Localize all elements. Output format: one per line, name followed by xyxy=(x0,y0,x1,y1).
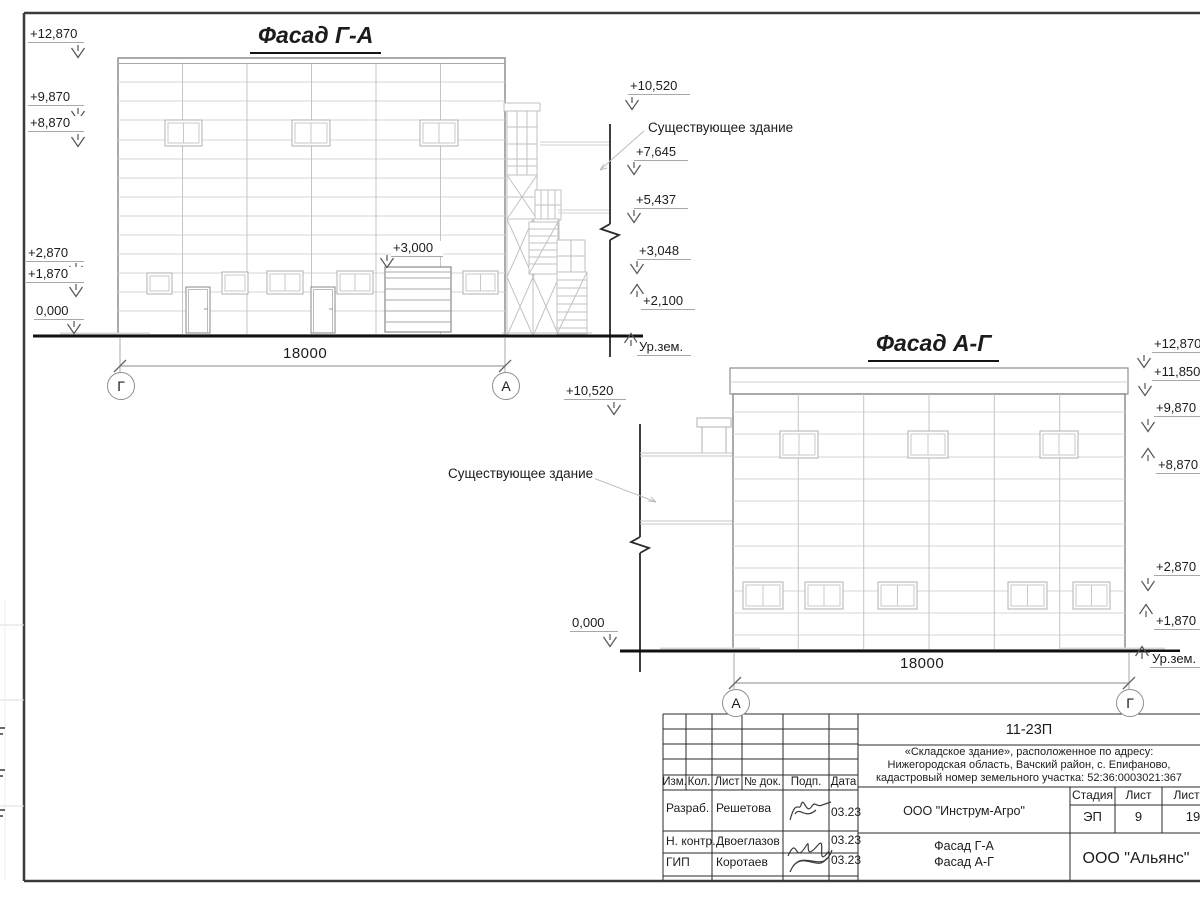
elevation-mark: +9,870 xyxy=(28,90,84,106)
dimension-label: 18000 xyxy=(283,345,327,362)
level-mark-down-icon xyxy=(66,320,82,335)
titleblock-name: Двоеглазов xyxy=(716,835,780,848)
axis-marker: Г xyxy=(1116,689,1144,717)
drawing-sheet: Фасад Г-А +12,870 +9,870 +8,870 +2,870 +… xyxy=(0,0,1200,900)
facade-ga-title: Фасад Г-А xyxy=(250,22,381,54)
ground-level-label: Ур.зем. xyxy=(1150,652,1200,668)
level-mark-down-icon xyxy=(70,133,86,148)
level-mark-down-icon xyxy=(626,209,642,224)
titleblock-project-line: кадастровый номер земельного участка: 52… xyxy=(858,772,1200,786)
stair-tower xyxy=(502,103,592,336)
elevation-mark: +2,100 xyxy=(641,294,695,310)
titleblock-sheet-title: Фасад Г-А xyxy=(858,840,1070,853)
elevation-mark: +1,870 xyxy=(1154,614,1200,630)
axis-marker: А xyxy=(722,689,750,717)
level-mark-up-icon xyxy=(1140,447,1156,462)
titleblock-project-line: Нижегородская область, Вачский район, с.… xyxy=(858,759,1200,773)
level-mark-down-icon xyxy=(624,96,640,111)
titleblock-company: ООО "Инструм-Агро" xyxy=(858,790,1070,833)
left-margin-fragments xyxy=(0,600,24,880)
elevation-mark: 0,000 xyxy=(570,616,618,632)
elevation-mark: +7,645 xyxy=(634,145,688,161)
dimension-label: 18000 xyxy=(900,655,944,672)
titleblock-stage-label: Стадия xyxy=(1070,789,1115,802)
elevation-mark: +10,520 xyxy=(564,384,626,400)
elevation-mark: +3,048 xyxy=(637,244,691,260)
elevation-mark: +5,437 xyxy=(634,193,688,209)
facade-ag-wall xyxy=(730,368,1128,650)
titleblock-sheets-value: 19 xyxy=(1162,810,1200,823)
titleblock-date: 03.23 xyxy=(831,806,861,819)
level-mark-up-icon xyxy=(1134,645,1150,660)
titleblock-role: Н. контр. xyxy=(666,835,716,848)
level-mark-down-icon xyxy=(1140,418,1156,433)
level-mark-down-icon xyxy=(1137,382,1153,397)
titleblock-role: Разраб. xyxy=(666,802,709,815)
elevation-mark: +10,520 xyxy=(628,79,690,95)
elevation-mark: 0,000 xyxy=(34,304,84,320)
elevation-mark: +12,870 xyxy=(28,27,84,43)
existing-building-label: Существующее здание xyxy=(646,120,795,135)
axis-letter: А xyxy=(501,378,510,394)
level-mark-down-icon xyxy=(70,44,86,59)
level-mark-down-icon xyxy=(626,161,642,176)
existing-building-label: Существующее здание xyxy=(446,466,595,481)
axis-marker: Г xyxy=(107,372,135,400)
titleblock-sheet-label: Лист xyxy=(1115,789,1162,802)
titleblock-code: 11-23П xyxy=(858,717,1200,743)
titleblock-project-line: «Складское здание», расположенное по адр… xyxy=(858,746,1200,760)
level-mark-down-icon xyxy=(629,260,645,275)
titleblock-name: Решетова xyxy=(716,802,771,815)
elevation-mark: +8,870 xyxy=(1156,458,1200,474)
elevation-mark: +8,870 xyxy=(28,116,84,132)
elevation-mark: +2,870 xyxy=(1154,560,1200,576)
titleblock-header-cell: Кол. xyxy=(686,776,712,789)
level-mark-down-icon xyxy=(68,283,84,298)
titleblock-header-cell: Подп. xyxy=(783,776,829,789)
elevation-mark: +2,870 xyxy=(26,246,84,262)
axis-letter: А xyxy=(731,695,740,711)
elevation-mark: +9,870 xyxy=(1154,401,1200,417)
level-mark-down-icon xyxy=(1140,577,1156,592)
titleblock-header-cell: Изм. xyxy=(663,776,686,789)
titleblock-header-cell: Лист xyxy=(712,776,742,789)
facade-ga-ground xyxy=(33,334,643,375)
facade-ag-title: Фасад А-Г xyxy=(868,330,999,362)
titleblock-sheet-value: 9 xyxy=(1115,810,1162,823)
titleblock-sheets-label: Листов xyxy=(1162,789,1200,802)
titleblock-stage-value: ЭП xyxy=(1070,810,1115,823)
level-mark-down-icon xyxy=(379,254,395,269)
titleblock-role: ГИП xyxy=(666,856,690,869)
elevation-mark: +12,870 xyxy=(1152,337,1200,353)
titleblock-name: Коротаев xyxy=(716,856,768,869)
titleblock-header-cell: № док. xyxy=(742,776,783,789)
facade-ga-gate xyxy=(385,267,451,332)
titleblock-date: 03.23 xyxy=(831,854,861,867)
axis-letter: Г xyxy=(1126,695,1134,711)
elevation-mark: +1,870 xyxy=(26,267,84,283)
titleblock-header-cell: Дата xyxy=(829,776,858,789)
elevation-mark: +3,000 xyxy=(391,241,443,257)
titleblock-org: ООО "Альянс" xyxy=(1070,845,1200,871)
axis-marker: А xyxy=(492,372,520,400)
level-mark-down-icon xyxy=(602,633,618,648)
elevation-mark: +11,850 xyxy=(1152,365,1200,381)
axis-letter: Г xyxy=(117,378,125,394)
level-mark-up-icon xyxy=(1138,603,1154,618)
titleblock-date: 03.23 xyxy=(831,834,861,847)
titleblock-sheet-title: Фасад А-Г xyxy=(858,856,1070,869)
ground-level-label: Ур.зем. xyxy=(637,340,691,356)
level-mark-down-icon xyxy=(606,401,622,416)
signature xyxy=(788,802,832,872)
level-mark-down-icon xyxy=(1136,354,1152,369)
